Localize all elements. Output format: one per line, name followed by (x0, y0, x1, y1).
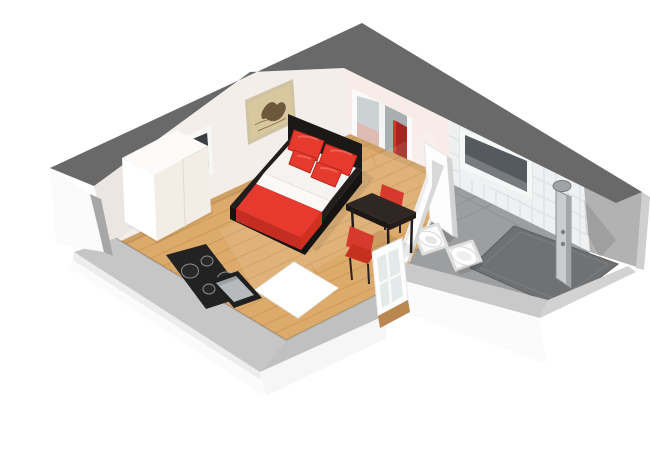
shower-knob2-icon (561, 242, 565, 246)
burner-icon (201, 256, 213, 266)
burner-icon (182, 264, 199, 278)
shower-head-icon (553, 181, 571, 192)
floorplan-3d-render (0, 0, 650, 450)
shower-knob-icon (561, 230, 565, 234)
floorplan-stage (0, 0, 650, 450)
shower-column (553, 181, 571, 289)
shower-panel-shade (566, 194, 571, 288)
burner-icon (203, 284, 215, 294)
